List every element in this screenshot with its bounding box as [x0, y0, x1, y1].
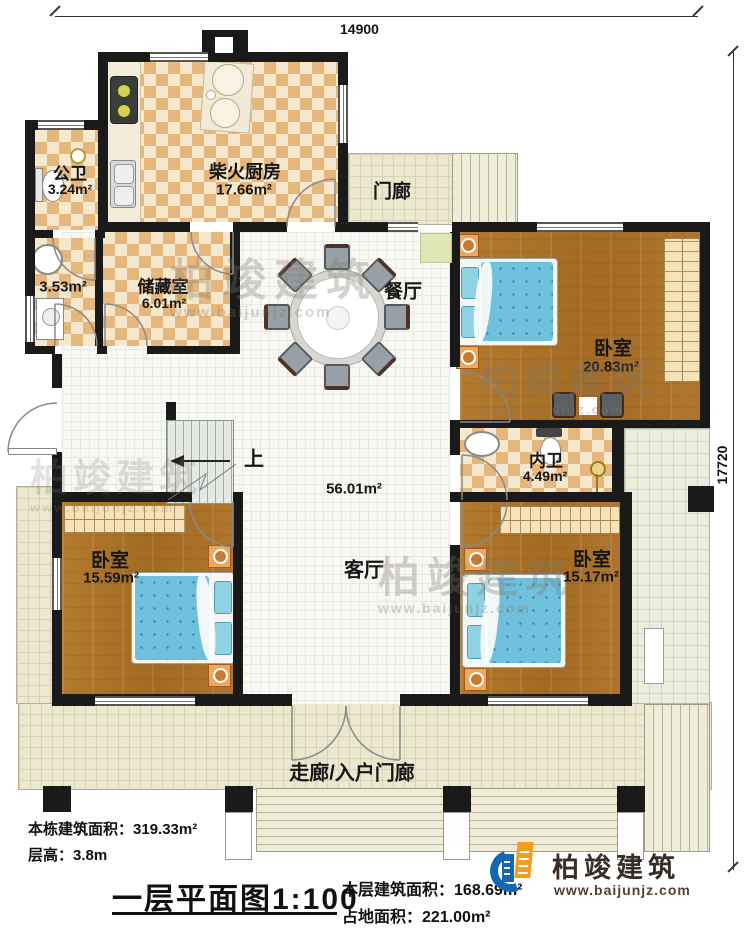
building-area-row: 本栋建筑面积：319.33m²	[28, 818, 197, 839]
label-storage-area: 6.01m²	[142, 295, 186, 311]
brand-website: www.baijunjz.com	[554, 882, 691, 898]
label-bedroom-sw-name: 卧室	[91, 546, 129, 573]
floor-height-row: 层高：3.8m	[28, 844, 107, 865]
land-area-label: 占地面积：	[342, 909, 422, 926]
land-area-value: 221.00m²	[422, 909, 491, 926]
label-living-name: 客厅	[344, 554, 384, 583]
dimension-line-top	[55, 16, 698, 17]
title-underline	[112, 912, 337, 915]
brand-logo	[490, 840, 548, 898]
label-public-bath-area: 3.24m²	[48, 181, 92, 197]
door-arc	[460, 372, 510, 422]
door-arc	[287, 179, 335, 227]
label-stairs-up: 上	[244, 443, 264, 472]
label-kitchen-name: 柴火厨房	[209, 158, 281, 184]
label-bedroom-se-name: 卧室	[573, 545, 611, 572]
door-arc	[190, 502, 233, 547]
dimension-line-right	[733, 52, 734, 870]
label-bedroom-ne-area: 20.83m²	[583, 359, 639, 376]
door-arcs-svg	[0, 0, 750, 933]
door-arc	[8, 403, 57, 452]
label-porch: 门廊	[373, 177, 411, 204]
logo-building-icon	[502, 854, 514, 882]
label-bedroom-ne-name: 卧室	[594, 334, 632, 361]
door-arc	[346, 706, 400, 760]
door-arc	[292, 706, 346, 760]
dimension-width-label: 14900	[340, 21, 379, 37]
label-entry-corridor: 走廊/入户门廊	[289, 757, 415, 786]
label-living-area: 56.01m²	[326, 481, 382, 498]
label-inner-bath-area: 4.49m²	[523, 468, 567, 484]
door-arc	[462, 502, 507, 547]
brand-name: 柏竣建筑	[552, 846, 680, 885]
label-dining: 餐厅	[384, 277, 422, 304]
floor-height-label: 层高：	[28, 847, 73, 864]
door-arc	[105, 304, 147, 346]
floor-area-label: 本层建筑面积：	[342, 882, 454, 899]
door-arc	[53, 238, 95, 280]
building-area-value: 319.33m²	[133, 821, 197, 838]
label-bedroom-se-area: 15.17m²	[563, 569, 619, 586]
label-kitchen-area: 17.66m²	[216, 182, 272, 199]
dimension-height-label: 17720	[714, 446, 730, 485]
building-area-label: 本栋建筑面积：	[28, 821, 133, 838]
floor-plan-canvas: 柴火厨房 17.66m² 公卫 3.24m² 3.53m² 储藏室 6.01m²…	[0, 0, 750, 933]
label-bedroom-sw-area: 15.59m²	[83, 570, 139, 587]
logo-building-icon	[514, 842, 533, 878]
door-arc	[191, 232, 233, 274]
door-arc	[462, 455, 507, 500]
door-arc	[55, 304, 97, 346]
label-storage-name: 储藏室	[138, 273, 189, 298]
label-side-bath-area: 3.53m²	[39, 279, 87, 296]
floor-height-value: 3.8m	[73, 847, 107, 864]
land-area-row: 占地面积：221.00m²	[342, 903, 491, 927]
stairs-direction-arrow	[168, 455, 236, 500]
